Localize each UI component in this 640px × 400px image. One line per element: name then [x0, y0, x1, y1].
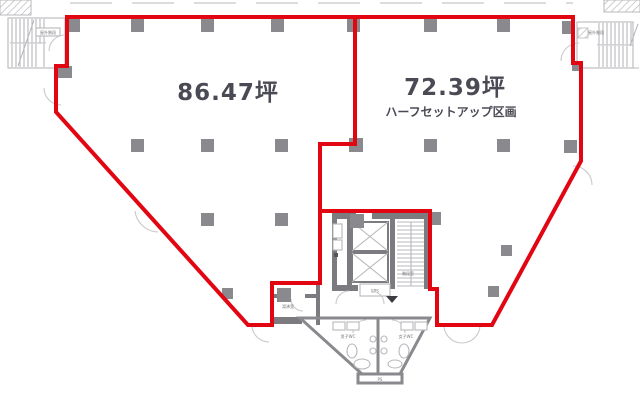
pillar — [424, 139, 437, 152]
core-wall — [372, 213, 430, 219]
core: 階段室 EPS 湯沸室 — [272, 213, 430, 325]
sink — [347, 322, 359, 330]
urinal — [381, 348, 387, 354]
area-labels: 86.47坪 72.39坪 ハーフセットアップ区画 — [177, 75, 517, 119]
door-arc — [462, 325, 480, 343]
urinal — [370, 336, 376, 342]
toilet — [399, 344, 409, 358]
floorplan-canvas: 屋外階段 屋外階段 — [0, 0, 640, 400]
restroom-block: PS 男子WC 女子WC — [300, 318, 430, 383]
hatched-structure-top-left — [0, 0, 31, 15]
pillar — [201, 19, 214, 32]
eps-shaft: EPS — [360, 284, 390, 296]
sink — [415, 322, 427, 330]
sink — [333, 322, 345, 330]
basin — [354, 359, 370, 369]
counter — [333, 224, 342, 238]
area-left-label: 86.47坪 — [177, 80, 279, 106]
pillar — [350, 214, 364, 228]
core-staircase: 階段室 — [397, 222, 424, 286]
urinal — [370, 348, 376, 354]
pillar — [201, 213, 214, 226]
door-arc — [336, 291, 349, 304]
door-arc — [561, 43, 579, 61]
pillar — [564, 140, 577, 153]
service-room-label: 湯沸室 — [282, 303, 294, 309]
hatched-structure-top-right — [604, 0, 640, 12]
pillar — [131, 139, 144, 152]
pillar — [201, 139, 214, 152]
pillar — [275, 213, 288, 226]
section-divider-line — [320, 17, 355, 211]
pillar — [275, 139, 288, 152]
core-wall — [390, 219, 395, 289]
stair-left-label: 屋外階段 — [40, 29, 56, 35]
core-wall — [332, 285, 358, 291]
sink — [401, 322, 413, 330]
elevator-shaft-2 — [352, 253, 388, 282]
wc-right-label: 女子WC — [399, 333, 414, 339]
wc-left-label: 男子WC — [341, 333, 356, 339]
stair-right-label: 屋外階段 — [588, 29, 604, 35]
pillar — [501, 245, 512, 256]
pillar — [277, 288, 291, 302]
room-wall — [274, 317, 302, 324]
pillar — [271, 19, 284, 32]
pillar — [497, 139, 510, 152]
exterior-staircase-left: 屋外階段 — [8, 18, 65, 68]
counter — [333, 240, 342, 250]
pillar — [497, 19, 510, 32]
door-arc — [44, 88, 61, 105]
pillar — [131, 19, 144, 32]
door-arc — [252, 325, 269, 342]
ps-label: PS — [378, 377, 383, 382]
stair-wall-stub — [578, 28, 588, 38]
door-arc — [444, 325, 462, 343]
basin — [388, 360, 402, 368]
pillar — [488, 286, 499, 297]
fixture-dot — [334, 253, 338, 257]
area-right-sublabel: ハーフセットアップ区画 — [385, 104, 516, 119]
toilet — [347, 344, 357, 358]
core-stair-label: 階段室 — [402, 270, 414, 276]
area-right-label: 72.39坪 — [404, 75, 506, 101]
entrance-arrow — [386, 296, 398, 303]
building-outline-top — [0, 0, 640, 15]
urinal — [381, 336, 387, 342]
pillar — [424, 19, 437, 32]
tenant-boundary — [56, 17, 581, 325]
